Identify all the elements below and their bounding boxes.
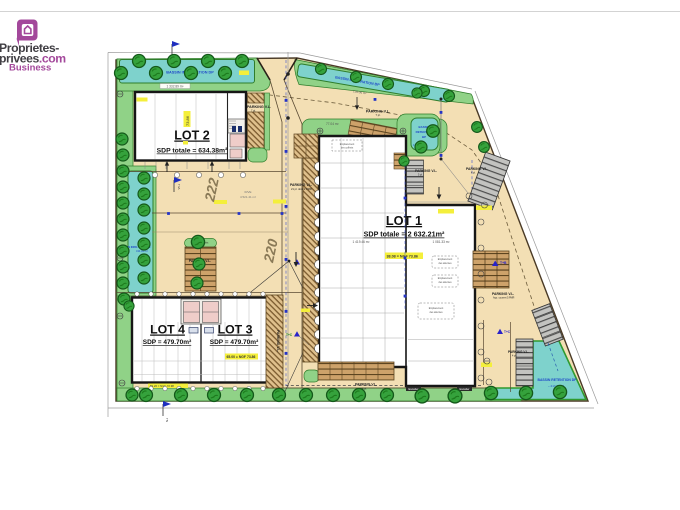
- svg-text:SDP totale = 2 632.21m²: SDP totale = 2 632.21m²: [364, 230, 445, 239]
- svg-text:PARKING V.L.: PARKING V.L.: [355, 383, 377, 387]
- svg-text:TN: TN: [165, 418, 169, 422]
- svg-text:65.00 = NGF 73.86: 65.00 = NGF 73.86: [227, 355, 256, 359]
- svg-text:des attentes: des attentes: [438, 281, 452, 284]
- svg-text:T+B: T+B: [500, 261, 507, 265]
- svg-text:SDP totale = 634.38m²: SDP totale = 634.38m²: [157, 148, 228, 155]
- svg-text:PARKING V.L.: PARKING V.L.: [415, 169, 437, 173]
- svg-text:des coffrets: des coffrets: [341, 147, 354, 150]
- svg-text:7 pl.: 7 pl.: [376, 113, 381, 117]
- svg-text:SDP = 479.70m²: SDP = 479.70m²: [210, 339, 259, 346]
- svg-text:77.04 m²: 77.04 m²: [326, 122, 339, 126]
- svg-text:7 pl.: 7 pl.: [251, 109, 256, 113]
- svg-text:LOT 1: LOT 1: [386, 213, 422, 228]
- svg-text:Emplacement: Emplacement: [438, 277, 453, 280]
- svg-text:PARKING V.L.: PARKING V.L.: [276, 330, 280, 352]
- svg-text:PARKING V.L.: PARKING V.L.: [247, 105, 271, 109]
- svg-text:T+C: T+C: [504, 330, 511, 334]
- svg-text:1 419.46 m²: 1 419.46 m²: [352, 240, 369, 244]
- svg-text:des attentes: des attentes: [429, 311, 443, 314]
- svg-text:73.86: 73.86: [185, 115, 190, 126]
- svg-text:1 081.33 m²: 1 081.33 m²: [432, 240, 449, 244]
- svg-text:BP: BP: [422, 135, 426, 139]
- svg-text:PARKING V.L.: PARKING V.L.: [366, 110, 390, 114]
- svg-text:IRVE: IRVE: [245, 190, 252, 194]
- svg-text:21 pl. dont 2 PMR: 21 pl. dont 2 PMR: [291, 187, 312, 191]
- svg-text:4 pl.: 4 pl.: [471, 172, 476, 175]
- svg-text:59.20 = NGF 72.98: 59.20 = NGF 72.98: [150, 384, 174, 388]
- svg-text:4 pl.: 4 pl.: [512, 355, 517, 358]
- svg-text:LOT 2: LOT 2: [174, 129, 209, 143]
- svg-text:38.08 = NGF 73.86: 38.08 = NGF 73.86: [387, 255, 418, 259]
- svg-text:Business: Business: [9, 63, 51, 74]
- svg-text:BASSIN RETENTION DP: BASSIN RETENTION DP: [538, 378, 578, 382]
- svg-text:Emplacement: Emplacement: [429, 307, 444, 310]
- svg-text:LOT 4: LOT 4: [150, 323, 185, 337]
- svg-text:TnA: TnA: [177, 184, 181, 190]
- svg-text:Emplacement: Emplacement: [438, 258, 453, 261]
- svg-text:PARKING V.L.: PARKING V.L.: [290, 183, 312, 187]
- svg-text:4 521.41 m²: 4 521.41 m²: [240, 195, 256, 199]
- svg-text:PARKING V.L.: PARKING V.L.: [466, 167, 488, 171]
- svg-text:LOT 3: LOT 3: [218, 323, 253, 337]
- svg-text:5 pl.: 5 pl.: [418, 174, 423, 177]
- svg-text:PARKING V.L.: PARKING V.L.: [508, 350, 529, 354]
- svg-text:T+C: T+C: [286, 333, 293, 337]
- svg-text:SDP = 479.70m²: SDP = 479.70m²: [143, 339, 192, 346]
- svg-text:Aqu. couvert 5 PMR: Aqu. couvert 5 PMR: [493, 297, 515, 300]
- svg-text:des attentes: des attentes: [438, 262, 452, 265]
- svg-text:PARKING V.L.: PARKING V.L.: [492, 292, 514, 296]
- svg-text:Escalier: Escalier: [460, 387, 470, 391]
- svg-text:1 332.89 m²: 1 332.89 m²: [166, 85, 183, 89]
